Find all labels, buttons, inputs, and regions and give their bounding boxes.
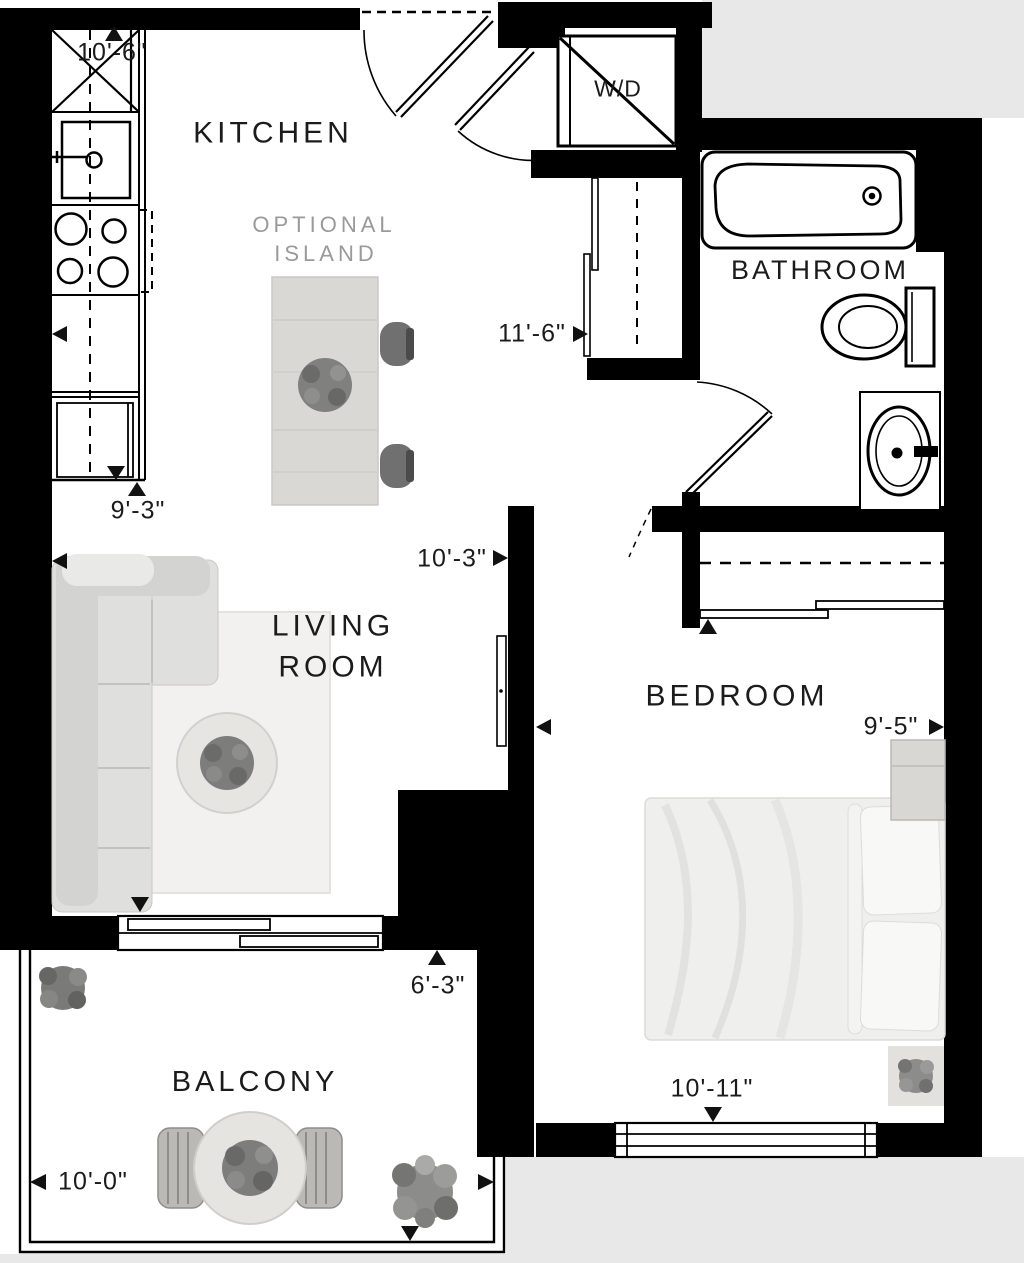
bed xyxy=(645,798,945,1040)
washer-dryer-label: W/D xyxy=(594,76,642,101)
bathtub-icon xyxy=(702,152,916,248)
living-room-label-line1: LIVING xyxy=(272,610,394,643)
floor-plan-drawing xyxy=(0,0,1024,1263)
bathroom-label: BATHROOM xyxy=(731,256,909,286)
balcony-sliding-door xyxy=(118,916,383,950)
dim-bedroom-width: 9'-5" xyxy=(864,713,919,741)
arrow-kitchen-width-left xyxy=(52,326,67,342)
arrow-bedroom-width-left xyxy=(536,719,551,735)
optional-island-label-line2: ISLAND xyxy=(274,242,377,266)
entry-door xyxy=(364,16,493,117)
dim-balcony-width: 10'-0" xyxy=(58,1168,128,1196)
bedroom-window xyxy=(615,1123,877,1157)
arrow-living-width-right xyxy=(493,550,508,566)
stove-icon xyxy=(56,210,153,292)
hall-closet xyxy=(584,178,637,356)
dim-balcony-depth: 6'-3" xyxy=(411,972,466,1000)
arrow-living-height-up xyxy=(128,482,146,496)
kitchen-cabinet xyxy=(57,403,133,477)
bedroom-closet xyxy=(700,563,944,618)
kitchen-label: KITCHEN xyxy=(193,117,353,150)
arrow-bedroom-width-right xyxy=(929,719,944,735)
arrow-bedroom-height-down xyxy=(704,1107,722,1122)
dim-living-height: 9'-3" xyxy=(111,497,166,525)
dim-living-width: 10'-3" xyxy=(417,545,487,573)
bedroom-plant-icon xyxy=(888,1046,944,1106)
balcony-label: BALCONY xyxy=(172,1067,339,1099)
island-stools xyxy=(380,322,414,488)
toilet-icon xyxy=(822,288,934,366)
floor-plan: KITCHEN OPTIONAL ISLAND W/D BATHROOM LIV… xyxy=(0,0,1024,1263)
dim-bedroom-height: 10'-11" xyxy=(671,1075,754,1103)
optional-island-label-line1: OPTIONAL xyxy=(252,213,395,237)
balcony-plant-bottom-icon xyxy=(392,1155,458,1228)
bedroom-label: BEDROOM xyxy=(645,680,828,713)
nightstand xyxy=(891,740,945,820)
dim-kitchen-height: 10'-6" xyxy=(77,39,147,67)
dim-kitchen-width: 11'-6" xyxy=(498,320,566,348)
living-room-label-line2: ROOM xyxy=(278,651,387,684)
arrow-bedroom-height-up xyxy=(699,619,717,634)
balcony-plant-top-icon xyxy=(39,966,87,1010)
closet-door xyxy=(455,47,543,160)
balcony-table xyxy=(158,1112,342,1224)
bathroom-sink-icon xyxy=(860,392,940,510)
coffee-table xyxy=(177,713,277,813)
kitchen-island xyxy=(272,277,378,505)
tv-icon xyxy=(497,636,506,746)
